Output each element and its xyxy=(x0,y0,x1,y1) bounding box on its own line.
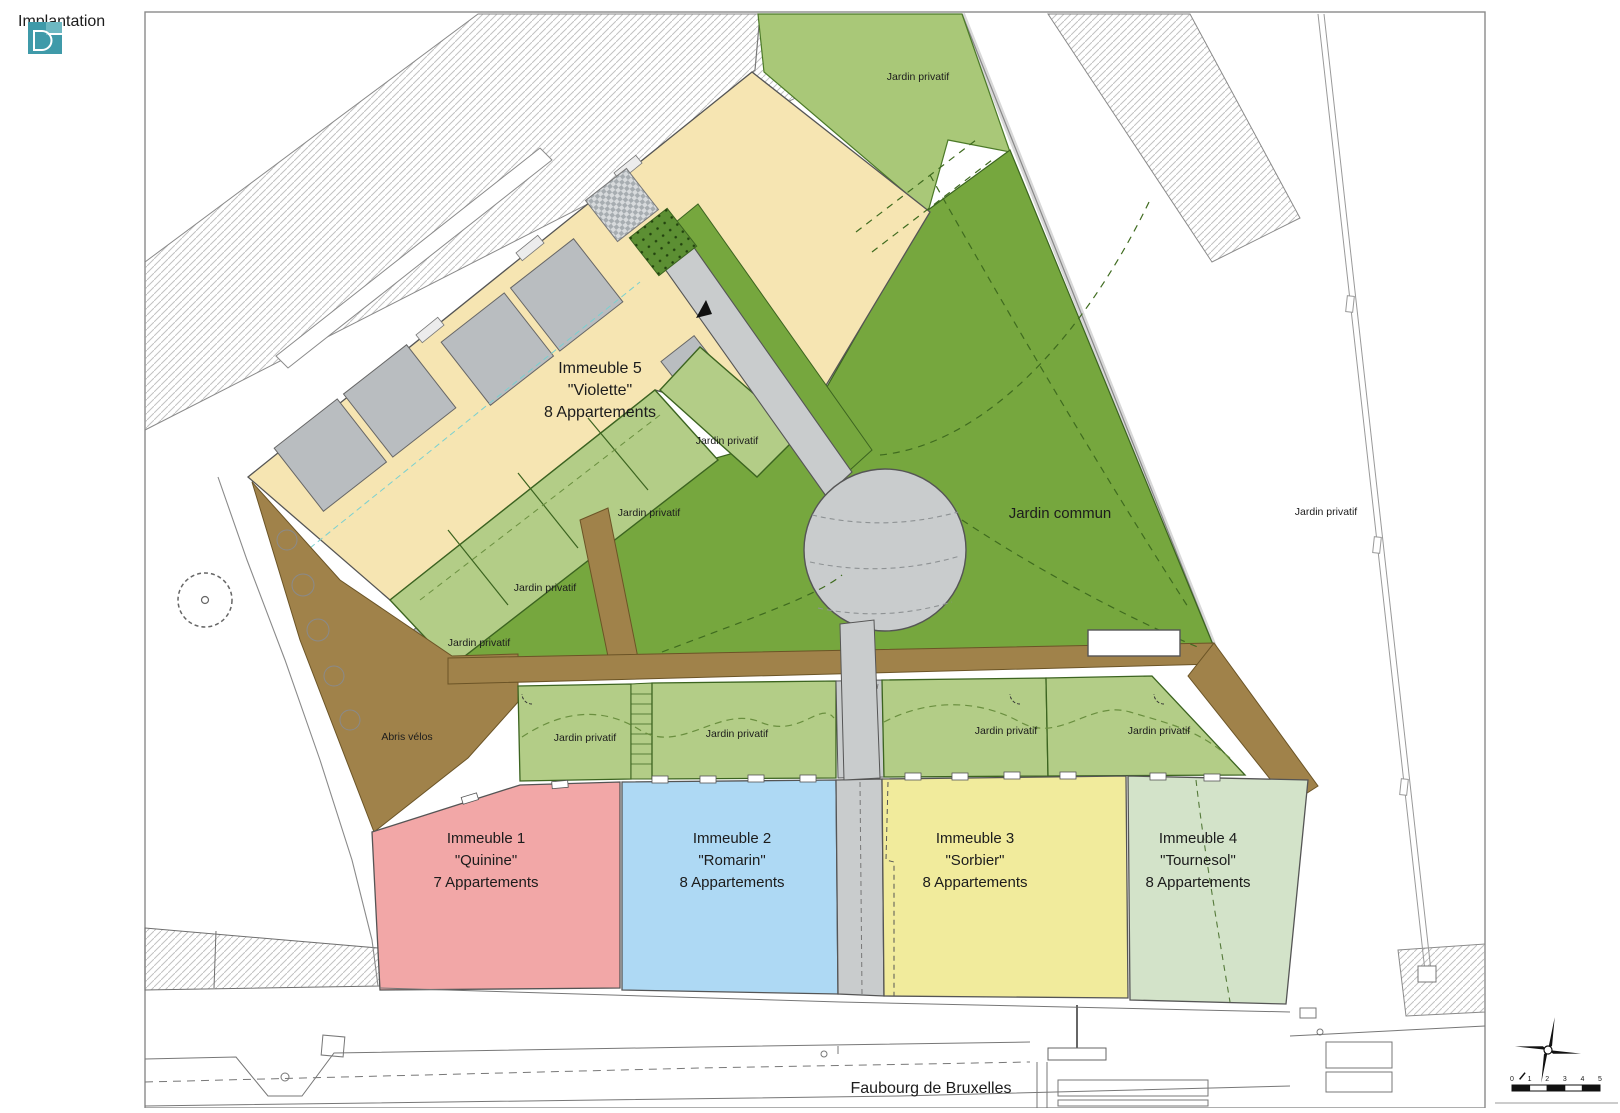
scale-tick: 2 xyxy=(1545,1076,1549,1083)
building4-title: Immeuble 4 xyxy=(1159,830,1237,847)
garden-private-label: Jardin privatif xyxy=(618,507,681,519)
building4-units: 8 Appartements xyxy=(1145,874,1250,891)
building3-name: "Sorbier" xyxy=(945,852,1004,869)
scale-tick: 3 xyxy=(1563,1076,1567,1083)
building1-name: "Quinine" xyxy=(455,852,517,869)
garden-private-label: Jardin privatif xyxy=(887,71,950,83)
building3-title: Immeuble 3 xyxy=(936,830,1014,847)
scale-tick: 4 xyxy=(1580,1076,1584,1083)
site-plan-page: Immeuble 5 "Violette" 8 Appartements Imm… xyxy=(0,0,1620,1108)
implantation-plan: Immeuble 5 "Violette" 8 Appartements Imm… xyxy=(0,0,1620,1108)
garden-private-label: Jardin privatif xyxy=(1128,725,1191,737)
garden-private-label: Jardin privatif xyxy=(696,435,759,447)
building5-title: Immeuble 5 xyxy=(558,360,642,377)
walkway-stem xyxy=(840,620,880,780)
garden-private-label: Jardin privatif xyxy=(448,637,511,649)
bike-shed-label: Abris vélos xyxy=(381,731,432,743)
building3-units: 8 Appartements xyxy=(922,874,1027,891)
building5-units: 8 Appartements xyxy=(544,404,656,421)
garden-private-label: Jardin privatif xyxy=(514,582,577,594)
garden-common-label: Jardin commun xyxy=(1009,505,1112,522)
building5-name: "Violette" xyxy=(568,382,632,399)
garden-private-label: Jardin privatif xyxy=(1295,506,1358,518)
garden-private-label: Jardin privatif xyxy=(975,725,1038,737)
scale-tick: 1 xyxy=(1528,1076,1532,1083)
walkway-circle xyxy=(804,469,966,631)
building4-name: "Tournesol" xyxy=(1160,852,1236,869)
building1-units: 7 Appartements xyxy=(433,874,538,891)
scale-tick: 0 xyxy=(1510,1076,1514,1083)
building2-name: "Romarin" xyxy=(698,852,765,869)
building2-units: 8 Appartements xyxy=(679,874,784,891)
scale-bar: 0 1 2 3 4 5 xyxy=(1495,1076,1618,1103)
building2-title: Immeuble 2 xyxy=(693,830,771,847)
page-header: Implantation xyxy=(18,13,105,54)
garden-private-label: Jardin privatif xyxy=(554,732,617,744)
scale-tick: 5 xyxy=(1598,1076,1602,1083)
bench xyxy=(1088,630,1180,656)
building1-title: Immeuble 1 xyxy=(447,830,525,847)
company-logo-icon xyxy=(28,22,62,54)
street-label: Faubourg de Bruxelles xyxy=(851,1080,1012,1097)
garden-private-label: Jardin privatif xyxy=(706,728,769,740)
